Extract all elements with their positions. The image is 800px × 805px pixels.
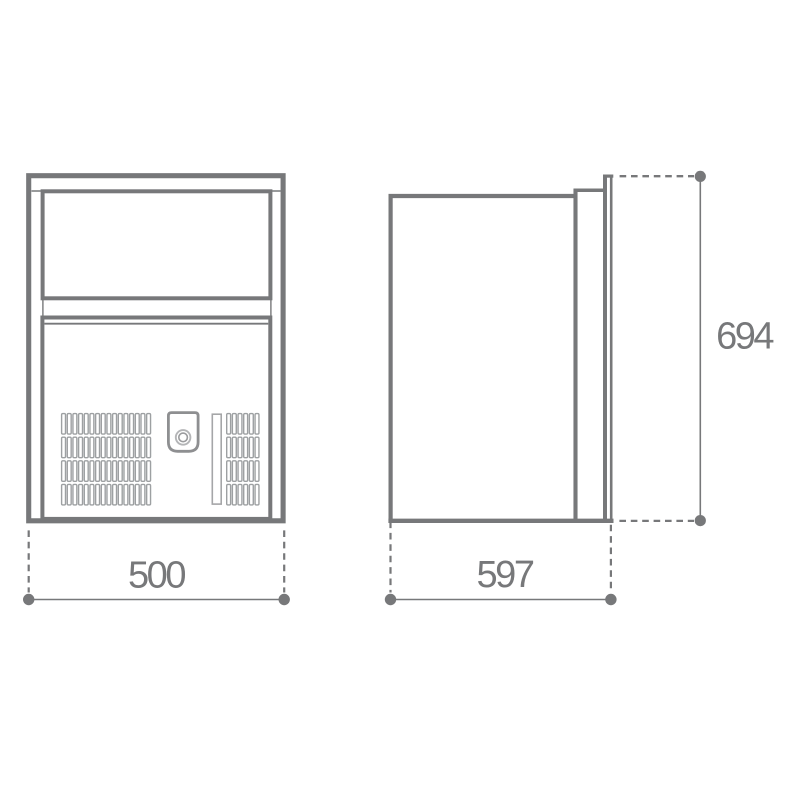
svg-text:694: 694 [716,316,774,358]
svg-text:597: 597 [477,554,534,596]
svg-text:500: 500 [128,555,185,597]
